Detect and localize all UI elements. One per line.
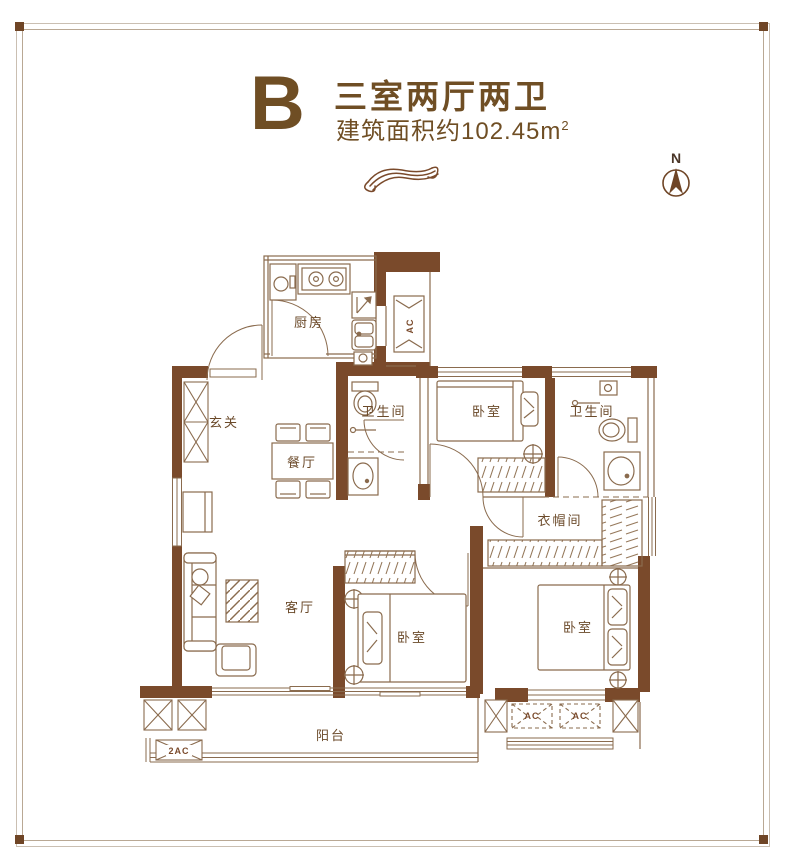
flourish-ornament <box>352 158 448 198</box>
water-heater-icon <box>600 381 617 395</box>
bath1-fixtures <box>348 382 378 495</box>
cloakroom-furniture <box>488 500 642 566</box>
column-box <box>613 700 638 732</box>
entry-door <box>207 325 262 380</box>
unit-area-value: 建筑面积约102.45m <box>336 118 561 145</box>
frame-corner-square <box>15 22 24 31</box>
room-label-kitchen: 厨房 <box>294 315 324 330</box>
room-label-balcony: 阳台 <box>316 728 346 743</box>
chair-icon <box>306 481 330 498</box>
balcony-features <box>144 700 638 760</box>
frame-corner-square <box>15 835 24 844</box>
wardrobe-icon <box>488 540 602 566</box>
room-label-cloakroom: 衣帽间 <box>537 513 582 528</box>
bath2-door <box>558 457 598 497</box>
ac-platform-sill <box>507 738 613 749</box>
bath2-fixtures <box>573 381 641 490</box>
ac-unit-symbol <box>609 568 627 586</box>
wardrobe-icon <box>478 458 545 492</box>
toilet-icon <box>599 418 637 442</box>
cloakroom-door <box>483 497 523 537</box>
platform-ac-label: AC <box>525 711 540 721</box>
bedroom1-door <box>430 444 483 497</box>
kitchen-basin-icon <box>274 277 288 291</box>
bath1-door <box>364 420 404 460</box>
balcony-ac-label: 2AC <box>168 746 189 756</box>
balcony-sliding-door <box>212 687 466 697</box>
armchair-icon <box>216 644 256 676</box>
frame-corner-square <box>759 835 768 844</box>
window-living-left <box>172 478 182 546</box>
ac-unit-symbol <box>609 671 627 689</box>
wardrobe-icon <box>602 500 642 566</box>
kitchen-sink-icon <box>352 320 376 350</box>
room-label-living: 客厅 <box>285 600 315 615</box>
column-box <box>144 700 172 730</box>
faucet-icon <box>351 428 356 433</box>
pillow-icon <box>521 392 538 426</box>
column-box <box>485 700 507 732</box>
room-label-foyer: 玄关 <box>209 415 239 430</box>
window-bedroom1-top <box>438 368 522 377</box>
unit-area-text: 建筑面积约102.45m2 <box>336 119 570 144</box>
stove-icon <box>298 264 350 294</box>
pillow-icon <box>608 629 627 665</box>
unit-type-headline: 三室两厅两卫 <box>334 80 550 113</box>
coffee-table-icon <box>226 580 258 622</box>
floorplan-page: { "page": { "background": "#ffffff", "fr… <box>0 0 791 865</box>
pillow-icon <box>363 612 382 664</box>
throw-pillow-icon <box>192 569 208 585</box>
floor-drain-icon <box>354 352 372 365</box>
room-label-bedroom2: 卧室 <box>397 630 427 645</box>
chair-icon <box>276 424 300 441</box>
window-bedroom3-bottom <box>528 690 605 700</box>
room-label-dining: 餐厅 <box>287 455 317 470</box>
sofa-icon <box>184 553 216 651</box>
pillow-icon <box>608 589 627 625</box>
ac-shaft-label: AC <box>405 319 415 334</box>
frame-corner-square <box>759 22 768 31</box>
bedroom1-furniture <box>437 381 545 492</box>
compass: N <box>650 150 702 206</box>
washbasin-icon <box>348 458 378 495</box>
living-furniture <box>183 492 258 676</box>
side-cabinet-icon <box>183 492 212 532</box>
fridge-icon <box>352 292 376 318</box>
unit-type-letter: B <box>250 66 305 142</box>
wardrobe-icon <box>345 551 415 583</box>
compass-north-label: N <box>671 150 681 166</box>
floor-plan-drawing: AC <box>140 240 670 800</box>
unit-area-sup: 2 <box>561 118 569 133</box>
room-label-bath1: 卫生间 <box>361 404 406 419</box>
room-label-bedroom3: 卧室 <box>563 620 593 635</box>
bedroom2-furniture <box>344 551 466 685</box>
window-bath2-top <box>552 368 631 377</box>
compass-needle-icon <box>669 168 683 194</box>
column-box <box>178 700 206 730</box>
window-cloakroom-right <box>649 497 656 556</box>
room-label-bath2: 卫生间 <box>569 404 614 419</box>
chair-icon <box>276 481 300 498</box>
room-label-bedroom1: 卧室 <box>472 404 502 419</box>
washbasin-icon <box>604 452 640 490</box>
foyer-cabinet <box>184 382 208 462</box>
chair-icon <box>306 424 330 441</box>
platform-ac-label: AC <box>573 711 588 721</box>
